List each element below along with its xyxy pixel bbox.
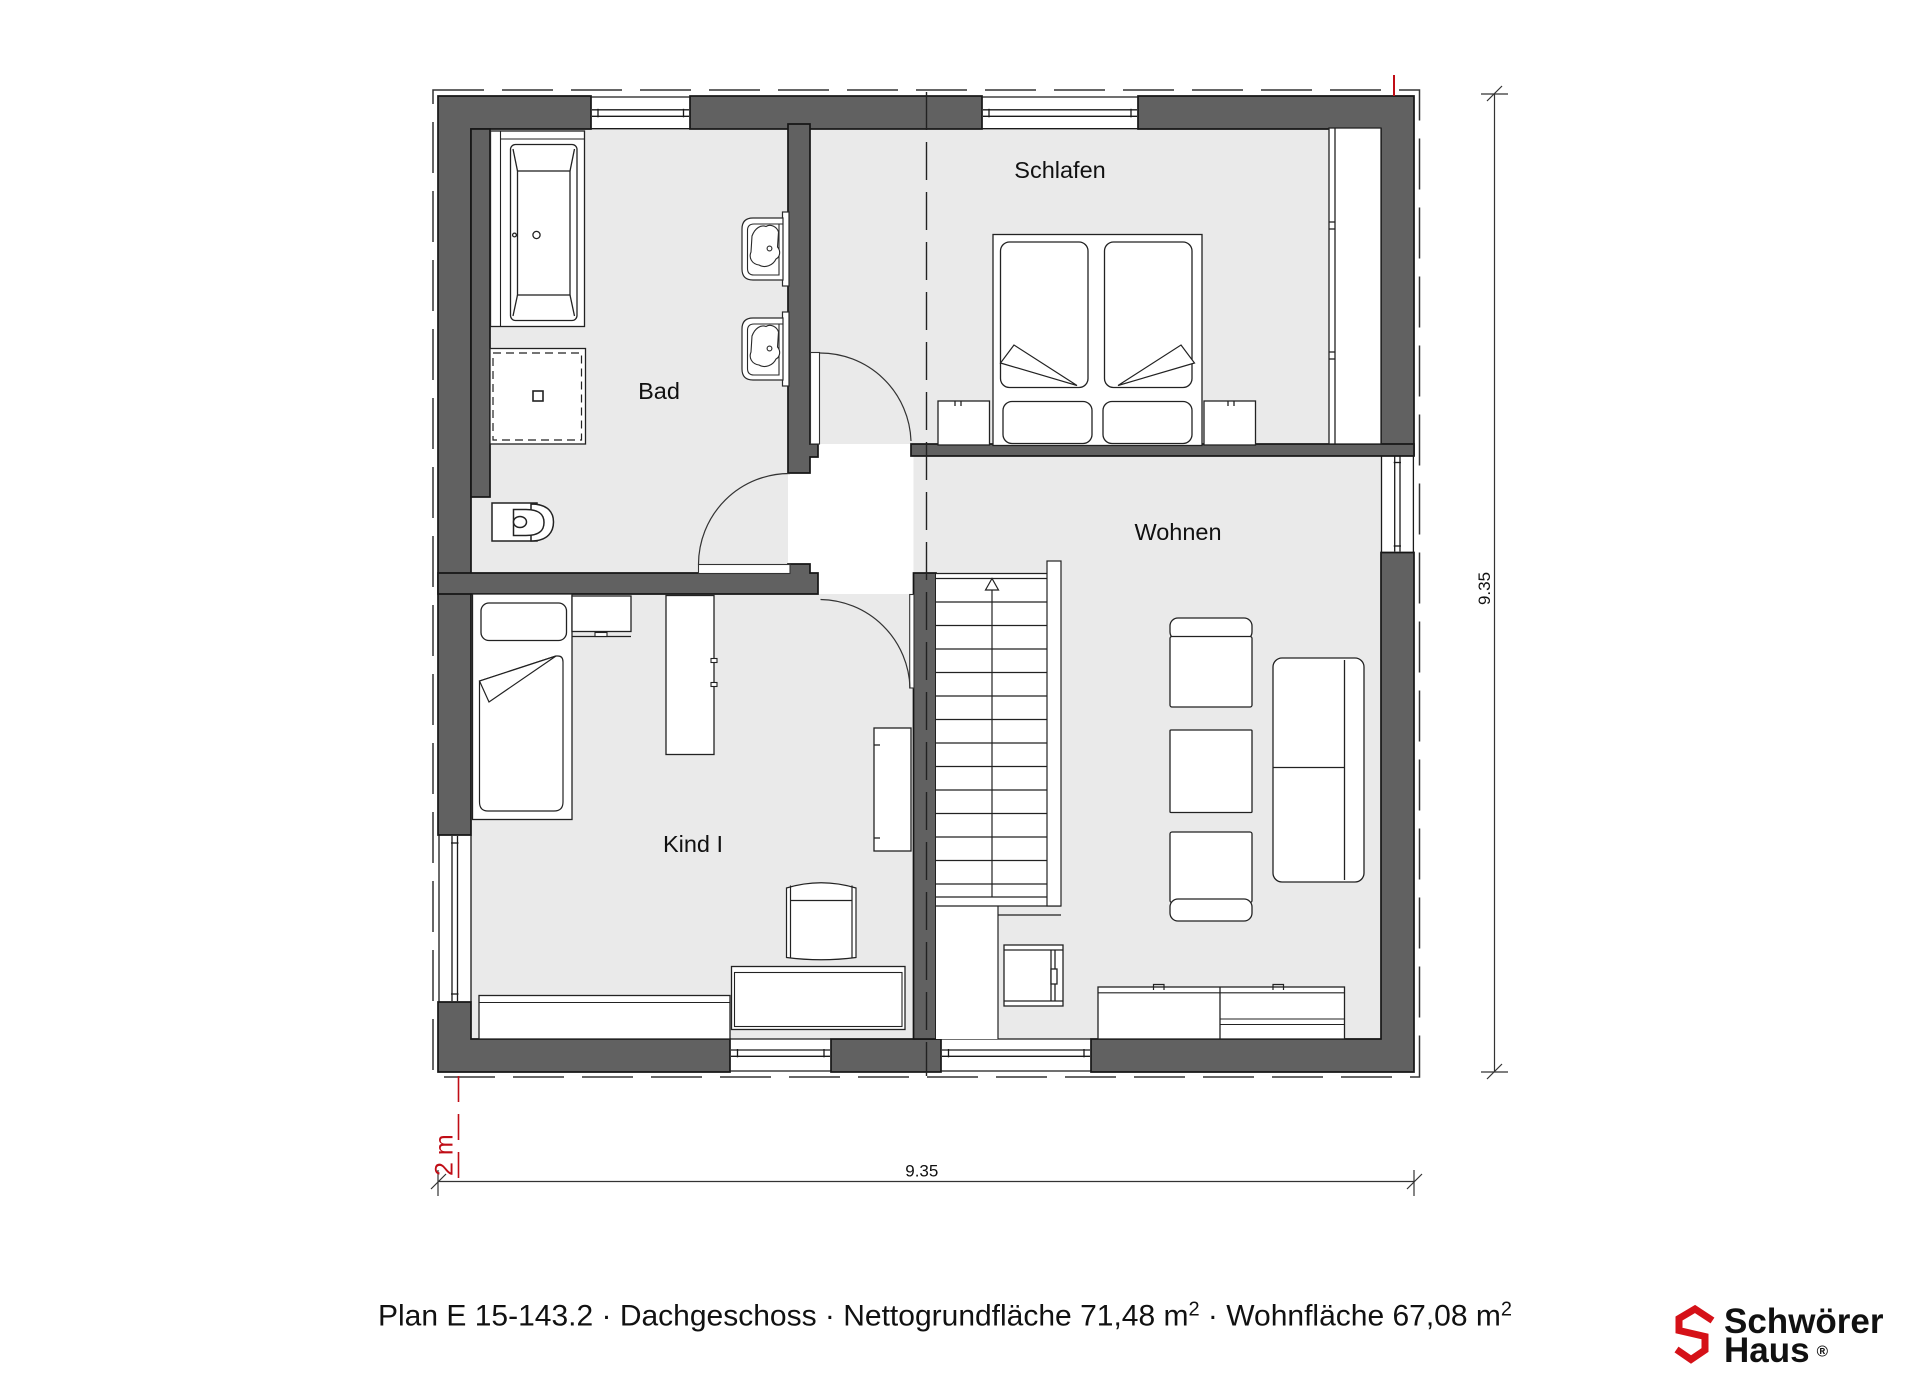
svg-text:9.35: 9.35 <box>1475 572 1494 605</box>
svg-text:Wohnen: Wohnen <box>1134 519 1221 545</box>
svg-text:2 m: 2 m <box>431 1134 459 1176</box>
svg-text:9.35: 9.35 <box>905 1162 938 1181</box>
svg-text:Bad: Bad <box>638 378 680 404</box>
svg-text:Schlafen: Schlafen <box>1014 157 1105 183</box>
svg-text:Plan E 15-143.2 · Dachgeschoss: Plan E 15-143.2 · Dachgeschoss · Nettogr… <box>378 1299 1512 1333</box>
svg-text:Kind I: Kind I <box>663 831 723 857</box>
